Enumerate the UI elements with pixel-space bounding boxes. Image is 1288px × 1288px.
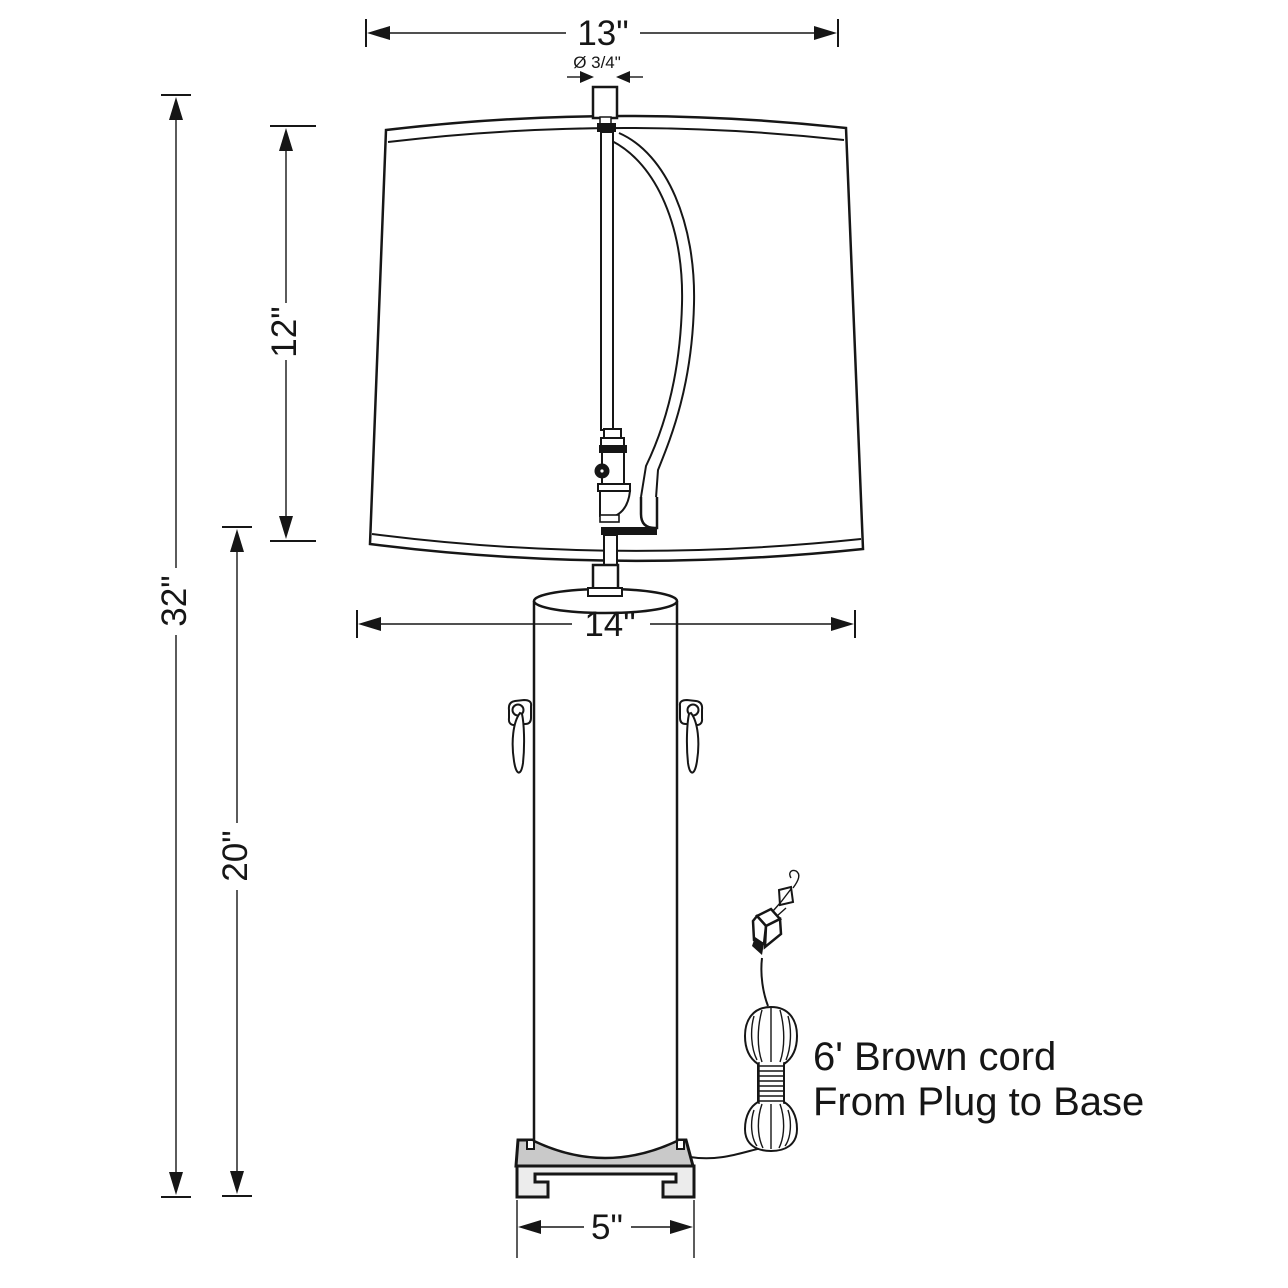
- dim-14-label: 14": [584, 605, 635, 644]
- dim-total-height: 32": [155, 95, 194, 1197]
- cord-to-plug: [761, 958, 768, 1006]
- dim-shade-top-width: 13": [366, 14, 838, 53]
- cord-note-line2: From Plug to Base: [813, 1080, 1144, 1124]
- right-handle: [680, 700, 702, 773]
- dim-base-width: 5": [517, 1200, 694, 1258]
- dim-5-label: 5": [591, 1208, 623, 1247]
- center-rod: [601, 132, 613, 430]
- dim-12-label: 12": [265, 306, 304, 357]
- neck-flange: [588, 588, 622, 596]
- neck-collar: [593, 565, 618, 590]
- plug-pigtail: [790, 870, 799, 888]
- cord-note: 6' Brown cord From Plug to Base: [813, 1035, 1144, 1124]
- harp-bottom-bracket: [601, 527, 657, 535]
- power-plug: [752, 870, 799, 955]
- neck: [604, 535, 617, 566]
- dim-body-height: 20": [216, 527, 255, 1196]
- dim-shade-height: 12": [265, 126, 316, 541]
- dim-20-label: 20": [216, 830, 255, 881]
- drawing-canvas: 13" Ø 3/4" 12" 32" 20": [0, 0, 1288, 1288]
- dim-13-label: 13": [577, 14, 628, 53]
- harp-end-sleeve: [641, 497, 657, 528]
- dim-finial-label: Ø 3/4": [573, 53, 621, 72]
- lamp-technical-drawing: 13" Ø 3/4" 12" 32" 20": [0, 0, 1288, 1288]
- left-handle: [509, 700, 531, 773]
- dim-32-label: 32": [155, 575, 194, 626]
- harp-saddle: [597, 123, 616, 132]
- finial-stem: [600, 117, 611, 124]
- dim-finial-diameter: Ø 3/4": [567, 53, 643, 83]
- lamp-body: [534, 565, 677, 1158]
- cord-coil: [745, 1007, 797, 1151]
- base-feet: [517, 1166, 694, 1197]
- cord-note-line1: 6' Brown cord: [813, 1035, 1056, 1079]
- cord-to-base: [690, 1147, 766, 1158]
- dim-body-width: 14": [357, 605, 855, 644]
